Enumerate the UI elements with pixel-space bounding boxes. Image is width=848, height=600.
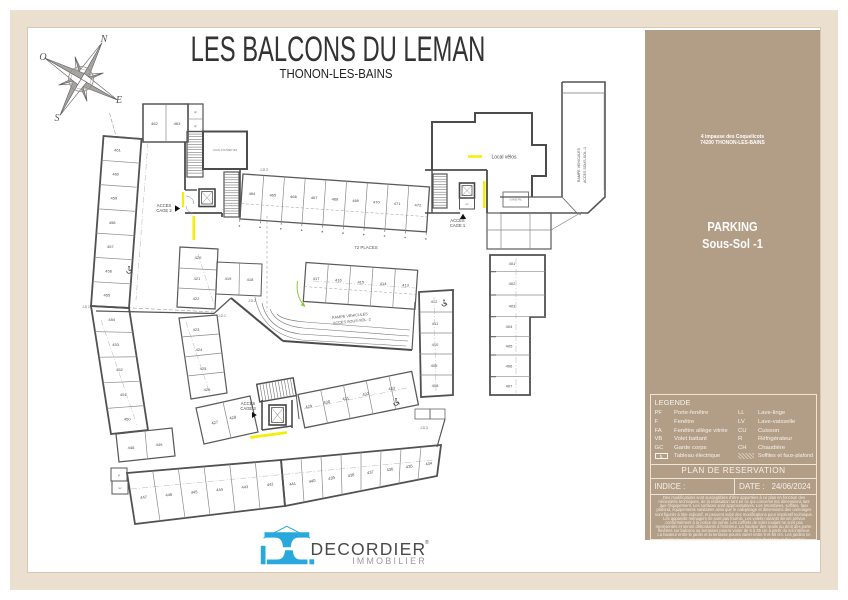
svg-text:434: 434 (425, 460, 433, 466)
svg-text:416: 416 (335, 278, 342, 283)
svg-text:465: 465 (269, 192, 276, 197)
svg-text:403: 403 (509, 303, 516, 308)
svg-text:409: 409 (431, 363, 438, 368)
svg-text:402: 402 (509, 281, 516, 286)
svg-text:426: 426 (204, 387, 211, 392)
svg-text:445: 445 (191, 489, 199, 495)
svg-text:GAINE PAL: GAINE PAL (509, 199, 522, 202)
svg-text:J.D 2: J.D 2 (260, 168, 268, 172)
svg-text:J.D.2: J.D.2 (248, 299, 256, 303)
svg-text:411: 411 (432, 321, 439, 326)
svg-text:431: 431 (342, 395, 350, 401)
svg-text:447: 447 (140, 494, 148, 500)
svg-text:J.D.3: J.D.3 (420, 426, 428, 430)
svg-text:IMMOBILIER: IMMOBILIER (352, 556, 427, 566)
svg-text:456: 456 (105, 268, 112, 273)
svg-text:446: 446 (165, 492, 173, 498)
svg-text:423: 423 (193, 327, 200, 332)
svg-text:459: 459 (111, 196, 118, 201)
svg-text:454: 454 (108, 317, 115, 322)
svg-text:435: 435 (406, 463, 414, 469)
svg-text:449: 449 (156, 442, 163, 447)
svg-text:LOCAL POUSSETTES: LOCAL POUSSETTES (213, 149, 238, 152)
svg-text:410: 410 (432, 342, 439, 347)
svg-text:wc: wc (465, 203, 469, 206)
svg-text:419: 419 (225, 276, 232, 281)
svg-text:405: 405 (506, 343, 513, 348)
svg-text:455: 455 (103, 293, 110, 298)
svg-text:463: 463 (174, 121, 181, 126)
svg-text:406: 406 (506, 363, 513, 368)
svg-text:450: 450 (124, 417, 131, 422)
svg-text:J.D.1: J.D.1 (218, 314, 226, 318)
svg-text:415: 415 (357, 279, 364, 284)
svg-text:448: 448 (128, 445, 135, 450)
svg-text:441: 441 (289, 481, 297, 487)
svg-text:437: 437 (367, 469, 375, 475)
svg-text:467: 467 (311, 195, 318, 200)
svg-text:469: 469 (352, 198, 359, 203)
svg-text:417: 417 (313, 276, 320, 281)
svg-text:LES BALCONS DU LEMAN: LES BALCONS DU LEMAN (191, 31, 486, 70)
svg-text:468: 468 (332, 197, 339, 202)
svg-text:O: O (39, 52, 46, 63)
svg-text:CAGE 2: CAGE 2 (156, 208, 172, 213)
svg-text:401: 401 (509, 261, 516, 266)
svg-text:442: 442 (267, 481, 275, 487)
svg-text:453: 453 (112, 342, 119, 347)
svg-text:444: 444 (216, 487, 224, 493)
svg-text:72 PLACES: 72 PLACES (354, 245, 378, 250)
svg-text:dp: dp (194, 124, 197, 128)
svg-text:466: 466 (290, 194, 297, 199)
svg-text:438: 438 (347, 472, 355, 478)
svg-text:THONON-LES-BAINS: THONON-LES-BAINS (279, 66, 392, 81)
svg-text:462: 462 (151, 121, 158, 126)
svg-text:452: 452 (116, 367, 123, 372)
svg-text:461: 461 (114, 147, 121, 152)
svg-text:412: 412 (431, 299, 438, 304)
svg-text:Local vélos: Local vélos (491, 155, 517, 161)
svg-text:422: 422 (193, 296, 200, 301)
svg-text:S: S (55, 113, 60, 124)
svg-text:458: 458 (109, 220, 116, 225)
svg-text:®: ® (425, 539, 429, 546)
svg-text:404: 404 (506, 324, 513, 329)
svg-text:414: 414 (380, 281, 387, 286)
svg-text:439: 439 (328, 475, 336, 481)
svg-text:433: 433 (388, 385, 396, 391)
svg-text:413: 413 (402, 282, 409, 287)
svg-text:460: 460 (112, 172, 119, 177)
svg-text:408: 408 (432, 383, 439, 388)
svg-text:N: N (100, 34, 109, 45)
svg-text:428: 428 (229, 414, 237, 420)
svg-text:424: 424 (196, 347, 203, 352)
svg-text:tec: tec (118, 486, 122, 490)
svg-text:440: 440 (308, 478, 316, 484)
svg-text:464: 464 (249, 191, 256, 196)
svg-text:457: 457 (107, 244, 114, 249)
svg-text:436: 436 (386, 466, 394, 472)
svg-text:RAMPE VEHICULES: RAMPE VEHICULES (577, 147, 581, 182)
svg-text:470: 470 (373, 200, 380, 205)
svg-text:gt: gt (118, 473, 120, 477)
svg-text:J.D 1: J.D 1 (82, 305, 90, 309)
svg-text:421: 421 (194, 276, 201, 281)
svg-text:CAGE 3: CAGE 3 (240, 406, 256, 411)
svg-text:418: 418 (247, 277, 254, 282)
svg-text:E: E (115, 95, 122, 106)
svg-text:427: 427 (211, 419, 219, 425)
svg-text:CAGE 1: CAGE 1 (450, 223, 466, 228)
svg-text:472: 472 (415, 203, 422, 208)
svg-text:dp: dp (194, 110, 197, 114)
svg-text:407: 407 (506, 383, 513, 388)
svg-text:471: 471 (394, 201, 401, 206)
svg-text:443: 443 (241, 484, 249, 490)
svg-text:ACCES SOUS-SOL -1: ACCES SOUS-SOL -1 (583, 147, 587, 183)
